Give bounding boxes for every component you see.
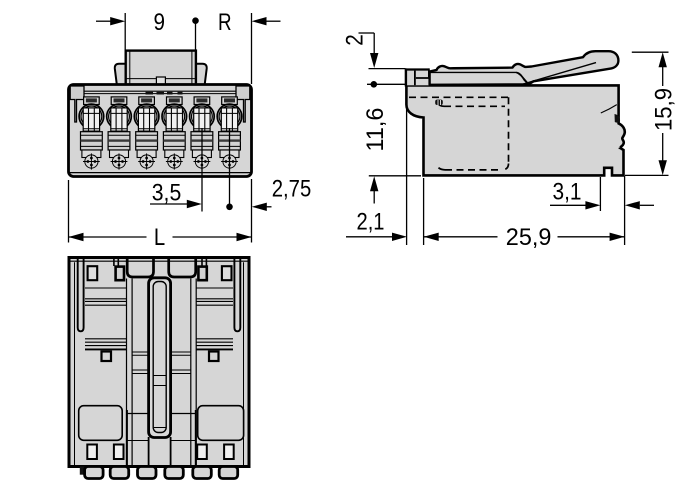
svg-text:2,75: 2,75 — [272, 176, 312, 203]
svg-text:9: 9 — [154, 9, 166, 36]
svg-text:2,1: 2,1 — [357, 209, 385, 236]
svg-text:2: 2 — [342, 34, 369, 46]
svg-text:15,9: 15,9 — [650, 88, 677, 131]
svg-text:11,6: 11,6 — [362, 108, 389, 152]
svg-text:25,9: 25,9 — [506, 224, 552, 251]
svg-text:L: L — [154, 224, 165, 251]
svg-text:R: R — [218, 9, 232, 36]
svg-text:3,1: 3,1 — [553, 179, 582, 206]
svg-text:3,5: 3,5 — [152, 180, 182, 207]
